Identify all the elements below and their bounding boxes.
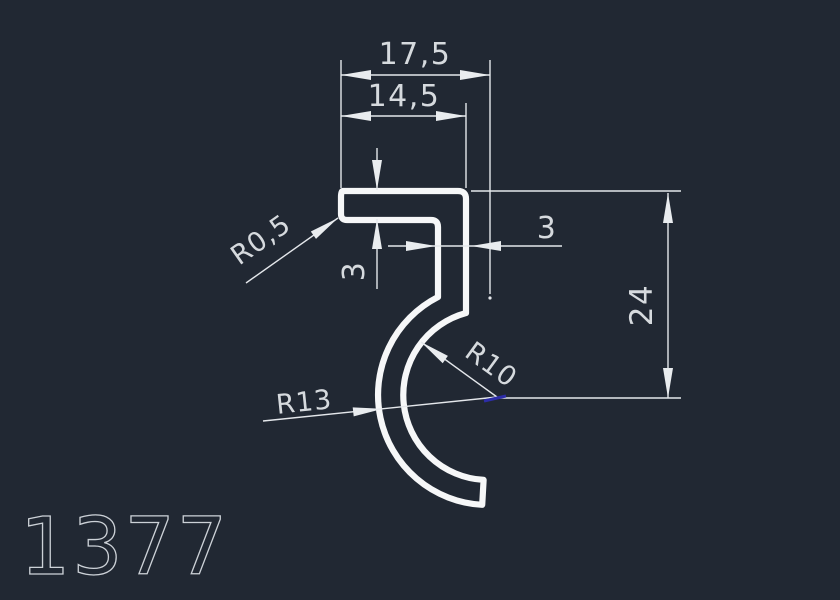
part-number-title: 1377 [20, 501, 229, 593]
cad-canvas: 17,5 14,5 3 3 24 R0,5 [0, 0, 840, 600]
radius-outer-label: R13 [275, 384, 334, 421]
dim-radius-corner: R0,5 [225, 208, 338, 283]
arrow-left-icon [471, 241, 501, 251]
dim-width-top-label: 14,5 [368, 79, 441, 114]
arrow-left-icon [341, 70, 371, 80]
dim-thickness-wall-label: 3 [537, 211, 558, 246]
arrow-leader-icon [421, 342, 448, 363]
arrow-down-icon [663, 368, 673, 398]
radius-inner-label: R10 [459, 336, 523, 394]
arrow-up-icon [372, 219, 382, 249]
radius-corner-label: R0,5 [225, 208, 297, 271]
dim-thickness-top-label: 3 [337, 261, 372, 282]
arrow-up-icon [663, 193, 673, 223]
dim-height-overall-label: 24 [624, 284, 660, 326]
arrow-down-icon [372, 160, 382, 190]
arrow-right-icon [460, 70, 490, 80]
profile-outline [341, 191, 484, 505]
dim-radius-inner: R10 [421, 336, 523, 401]
arrow-right-icon [406, 241, 436, 251]
arrow-right-icon [436, 111, 466, 121]
dim-width-top: 14,5 [341, 79, 466, 188]
arrow-leader-icon [311, 218, 338, 239]
arrow-left-icon [341, 111, 371, 121]
dim-width-overall-label: 17,5 [379, 37, 452, 72]
extension-endpoint-dot [488, 296, 491, 299]
